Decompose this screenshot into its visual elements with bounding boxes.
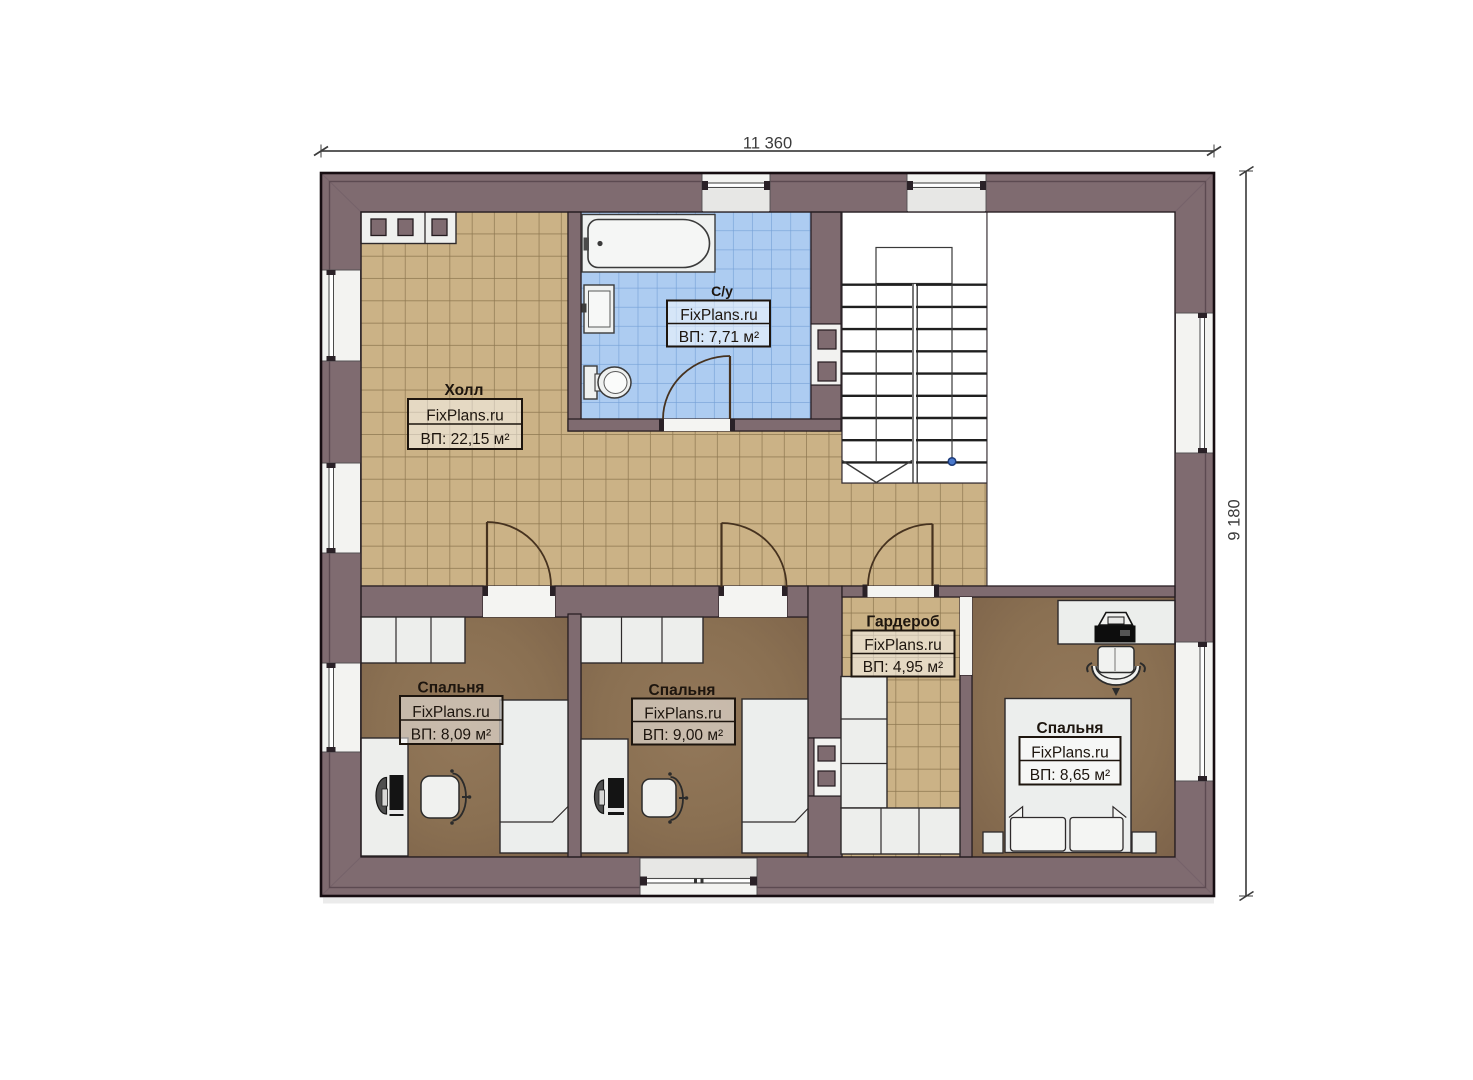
svg-text:Спальня: Спальня	[649, 682, 716, 699]
svg-text:С/у: С/у	[711, 283, 733, 299]
svg-text:FixPlans.ru: FixPlans.ru	[1031, 745, 1109, 762]
svg-text:ВП: 8,09 м²: ВП: 8,09 м²	[411, 727, 491, 744]
svg-text:FixPlans.ru: FixPlans.ru	[644, 706, 722, 723]
svg-text:FixPlans.ru: FixPlans.ru	[864, 637, 942, 654]
svg-text:FixPlans.ru: FixPlans.ru	[680, 307, 758, 324]
svg-text:ВП: 9,00 м²: ВП: 9,00 м²	[643, 727, 723, 744]
svg-text:Холл: Холл	[445, 382, 484, 399]
svg-text:ВП: 7,71 м²: ВП: 7,71 м²	[679, 329, 759, 346]
svg-text:FixPlans.ru: FixPlans.ru	[412, 704, 490, 721]
svg-text:Гардероб: Гардероб	[866, 614, 939, 631]
svg-text:ВП: 22,15 м²: ВП: 22,15 м²	[420, 431, 509, 448]
svg-text:ВП: 4,95 м²: ВП: 4,95 м²	[863, 659, 943, 676]
svg-text:ВП: 8,65 м²: ВП: 8,65 м²	[1030, 767, 1110, 784]
svg-text:Спальня: Спальня	[1037, 720, 1104, 737]
svg-text:Спальня: Спальня	[418, 680, 485, 697]
svg-text:FixPlans.ru: FixPlans.ru	[426, 408, 504, 425]
svg-text:9 180: 9 180	[1226, 499, 1244, 540]
svg-text:11 360: 11 360	[743, 135, 792, 153]
